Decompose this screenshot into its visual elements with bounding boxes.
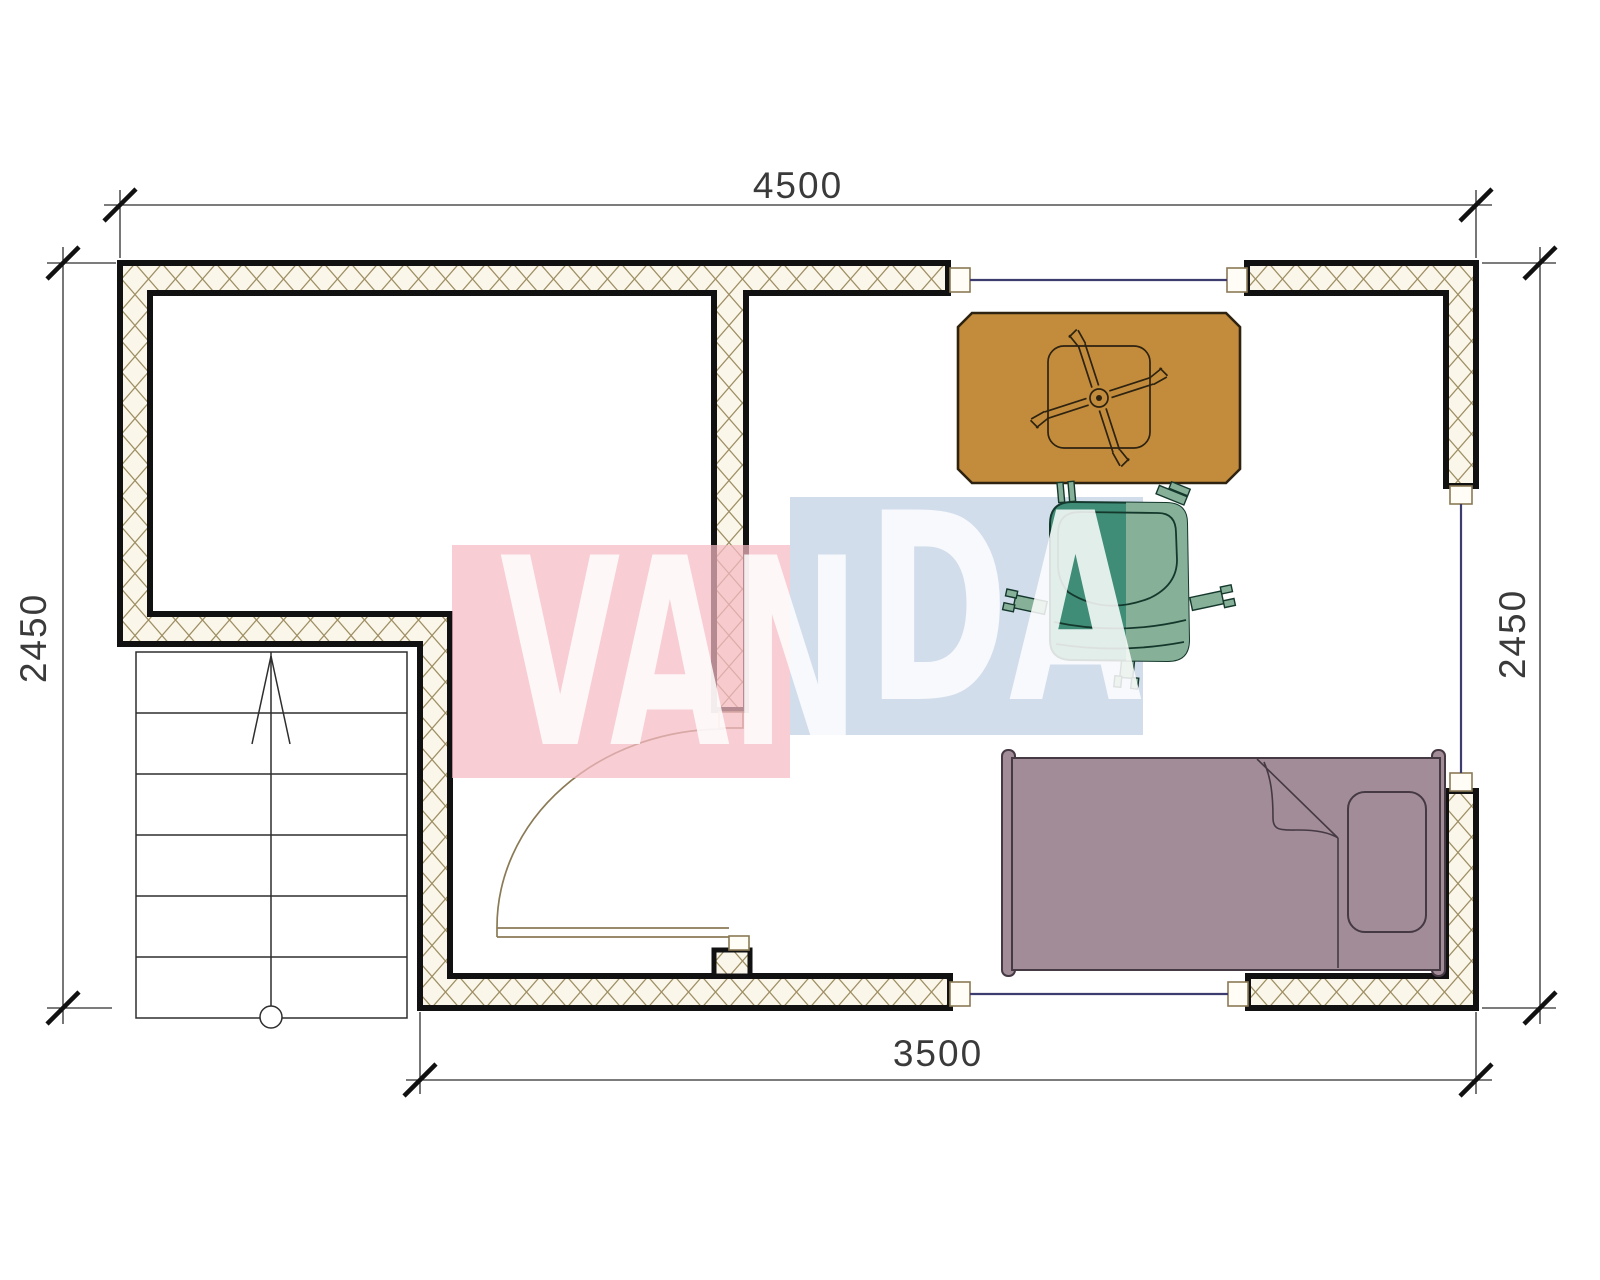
dimension-left-label: 2450 — [13, 593, 54, 683]
dimension-top-label: 4500 — [753, 165, 843, 206]
watermark-text-left: VAN — [500, 504, 860, 806]
floor-plan: 4500 2450 2450 3500 — [0, 0, 1600, 1280]
wall-top-right — [1247, 263, 1476, 486]
dimension-bottom-label: 3500 — [893, 1033, 983, 1074]
dimension-right-label: 2450 — [1492, 589, 1533, 679]
window-right-cap-bottom — [1450, 773, 1472, 791]
door-leaf — [497, 928, 729, 937]
desk — [958, 313, 1240, 483]
stairs-start-circle — [260, 1006, 282, 1028]
dimension-left — [47, 247, 116, 1024]
floor-plan-svg: 4500 2450 2450 3500 — [0, 0, 1600, 1280]
window-bottom-cap-left — [950, 982, 970, 1006]
door-jamb-cap-bottom — [729, 936, 749, 950]
watermark-text: VAN DA — [500, 459, 1143, 806]
bed-pillow — [1348, 792, 1426, 932]
window-top-cap-right — [1227, 268, 1247, 292]
wall-door-jamb-notch — [714, 950, 750, 976]
window-bottom-cap-right — [1228, 982, 1248, 1006]
window-right-cap-top — [1450, 486, 1472, 504]
window-top-cap-left — [950, 268, 970, 292]
bed — [1002, 750, 1445, 976]
stairs — [136, 652, 407, 1028]
chair-armrest-right — [1189, 585, 1235, 614]
watermark-text-right: DA — [866, 459, 1143, 761]
